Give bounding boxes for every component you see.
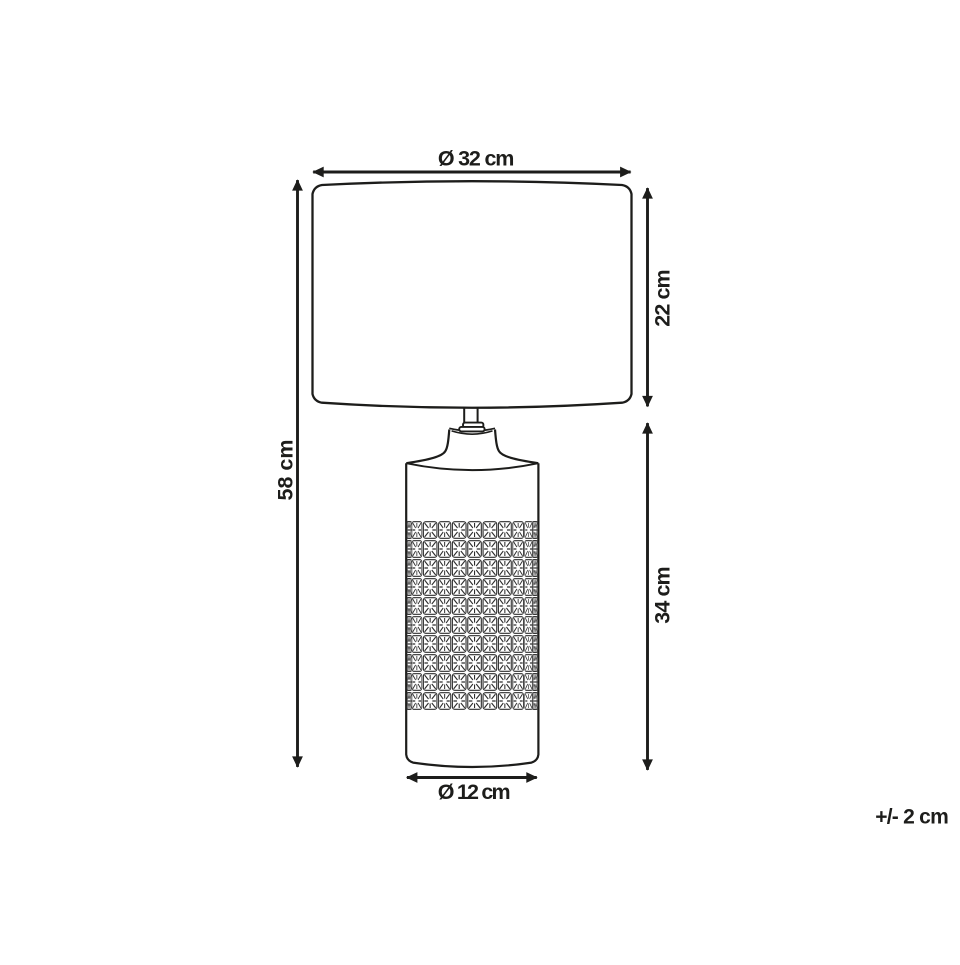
svg-text:+/- 2 cm: +/- 2 cm bbox=[875, 806, 948, 829]
svg-text:Ø 32 cm: Ø 32 cm bbox=[438, 147, 513, 171]
svg-text:22 cm: 22 cm bbox=[651, 270, 675, 326]
svg-text:34 cm: 34 cm bbox=[651, 567, 675, 623]
svg-text:Ø 12 cm: Ø 12 cm bbox=[438, 780, 510, 804]
svg-text:58 cm: 58 cm bbox=[274, 440, 298, 501]
